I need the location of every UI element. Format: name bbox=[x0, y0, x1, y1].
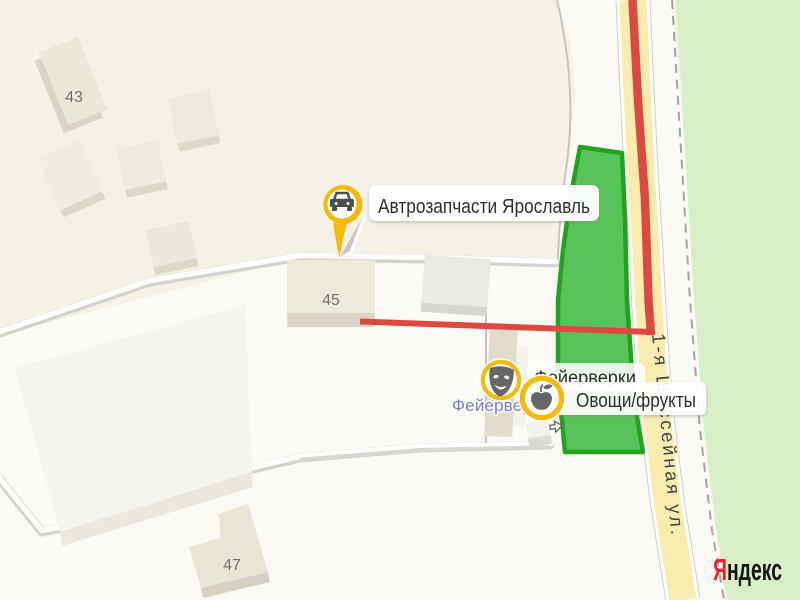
svg-text:Овощи/фрукты: Овощи/фрукты bbox=[576, 390, 696, 412]
svg-text:Автрозапчасти Ярославль: Автрозапчасти Ярославль bbox=[378, 196, 590, 218]
svg-text:47: 47 bbox=[223, 557, 241, 574]
svg-text:43: 43 bbox=[65, 89, 83, 106]
svg-text:Яндекс: Яндекс bbox=[713, 552, 782, 587]
svg-text:45: 45 bbox=[322, 292, 340, 309]
